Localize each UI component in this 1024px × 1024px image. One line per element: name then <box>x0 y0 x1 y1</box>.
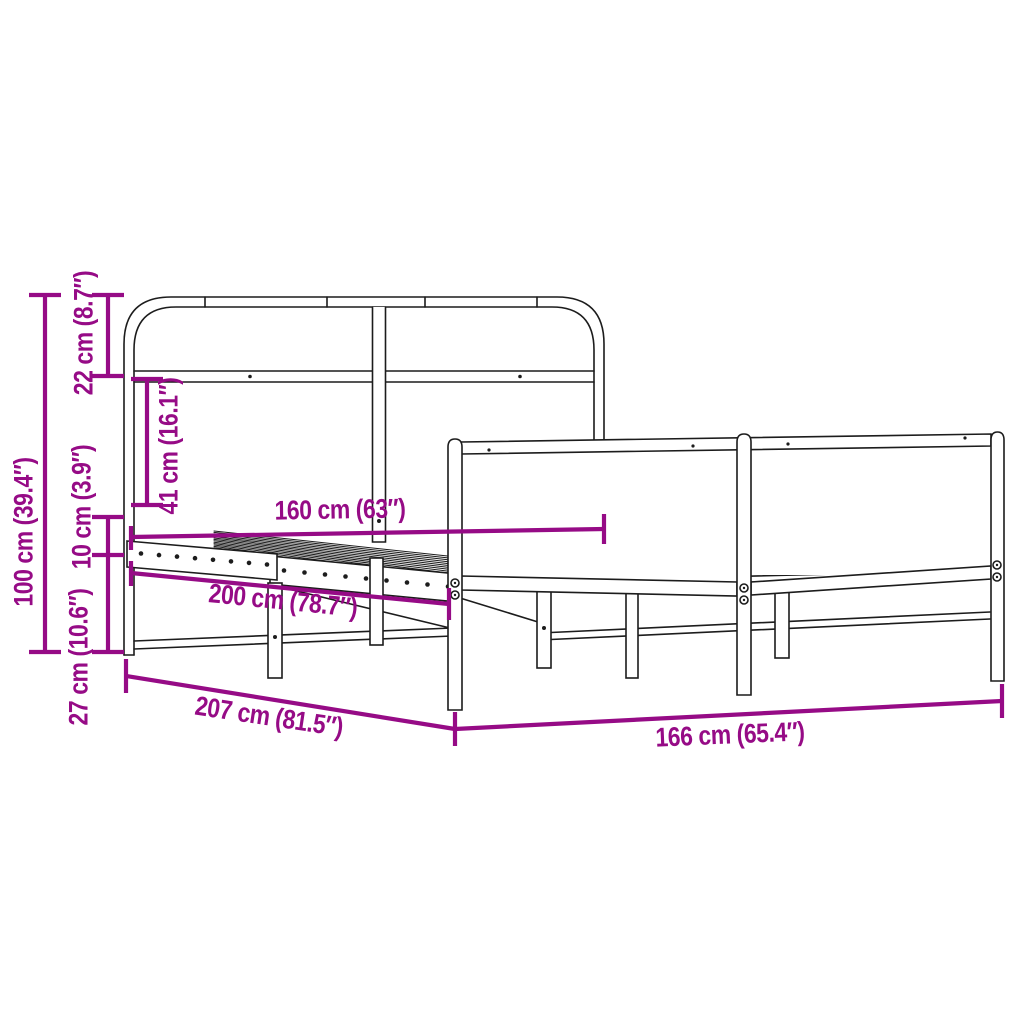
dimension-label-total-height: 100 cm (39.4″) <box>9 457 40 606</box>
dimension-label-frame-width: 166 cm (65.4″) <box>655 716 805 753</box>
dimension-label-headboard-middle: 41 cm (16.1″) <box>154 378 185 515</box>
footboard-drawing <box>448 432 1004 710</box>
dimension-label-under-bed-clearance: 27 cm (10.6″) <box>64 589 95 726</box>
dimension-label-headboard-top: 22 cm (8.7″) <box>69 271 100 396</box>
dimension-label-side-rail-height: 10 cm (3.9″) <box>67 445 98 570</box>
product-dimension-image: 100 cm (39.4″) 22 cm (8.7″) 41 cm (16.1″… <box>0 0 1024 1024</box>
dimension-label-mattress-width: 160 cm (63″) <box>274 493 405 526</box>
